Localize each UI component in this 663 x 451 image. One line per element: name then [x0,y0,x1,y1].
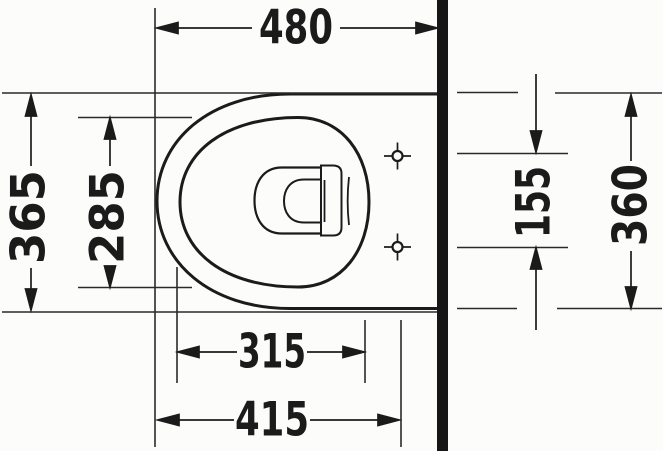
arrowhead-up [626,95,637,116]
arrowhead-up [105,118,116,139]
dim-label-365: 365 [2,170,57,264]
dimension-labels: 480 365 285 155 360 315 415 [2,1,659,448]
arrowhead-right [378,415,399,426]
toilet-outlines [157,94,437,309]
hole-circle [393,242,403,252]
bowl-opening-outline [255,168,323,234]
mounting-holes [384,143,411,261]
toilet-plan-drawing: 480 365 285 155 360 315 415 [0,0,663,451]
dim-label-315: 315 [238,325,306,380]
wall-section-bar [437,0,448,451]
toilet-outer-outline [157,94,437,309]
arrowhead-down [105,266,116,287]
technical-drawing-page: 480 365 285 155 360 315 415 [0,0,663,451]
arrowhead-left [157,23,178,34]
hole-circle [393,151,403,161]
mounting-hole-top [384,143,411,170]
arrowhead-right [416,23,437,34]
dim-label-415: 415 [235,393,309,448]
water-area-outline [284,180,321,223]
arrowhead-right [343,347,364,358]
arrowhead-up [531,248,542,269]
dim-label-285: 285 [81,170,136,264]
arrowhead-down [626,287,637,308]
arrowhead-up [26,95,37,116]
rim-edge-line [348,177,349,225]
arrowhead-down [531,131,542,152]
mounting-hole-bottom [384,234,411,261]
dim-label-480: 480 [259,1,333,56]
dim-label-155: 155 [507,166,562,238]
dim-label-360: 360 [604,164,659,246]
arrowhead-left [178,347,199,358]
arrowhead-down [26,289,37,310]
arrowhead-left [158,415,179,426]
